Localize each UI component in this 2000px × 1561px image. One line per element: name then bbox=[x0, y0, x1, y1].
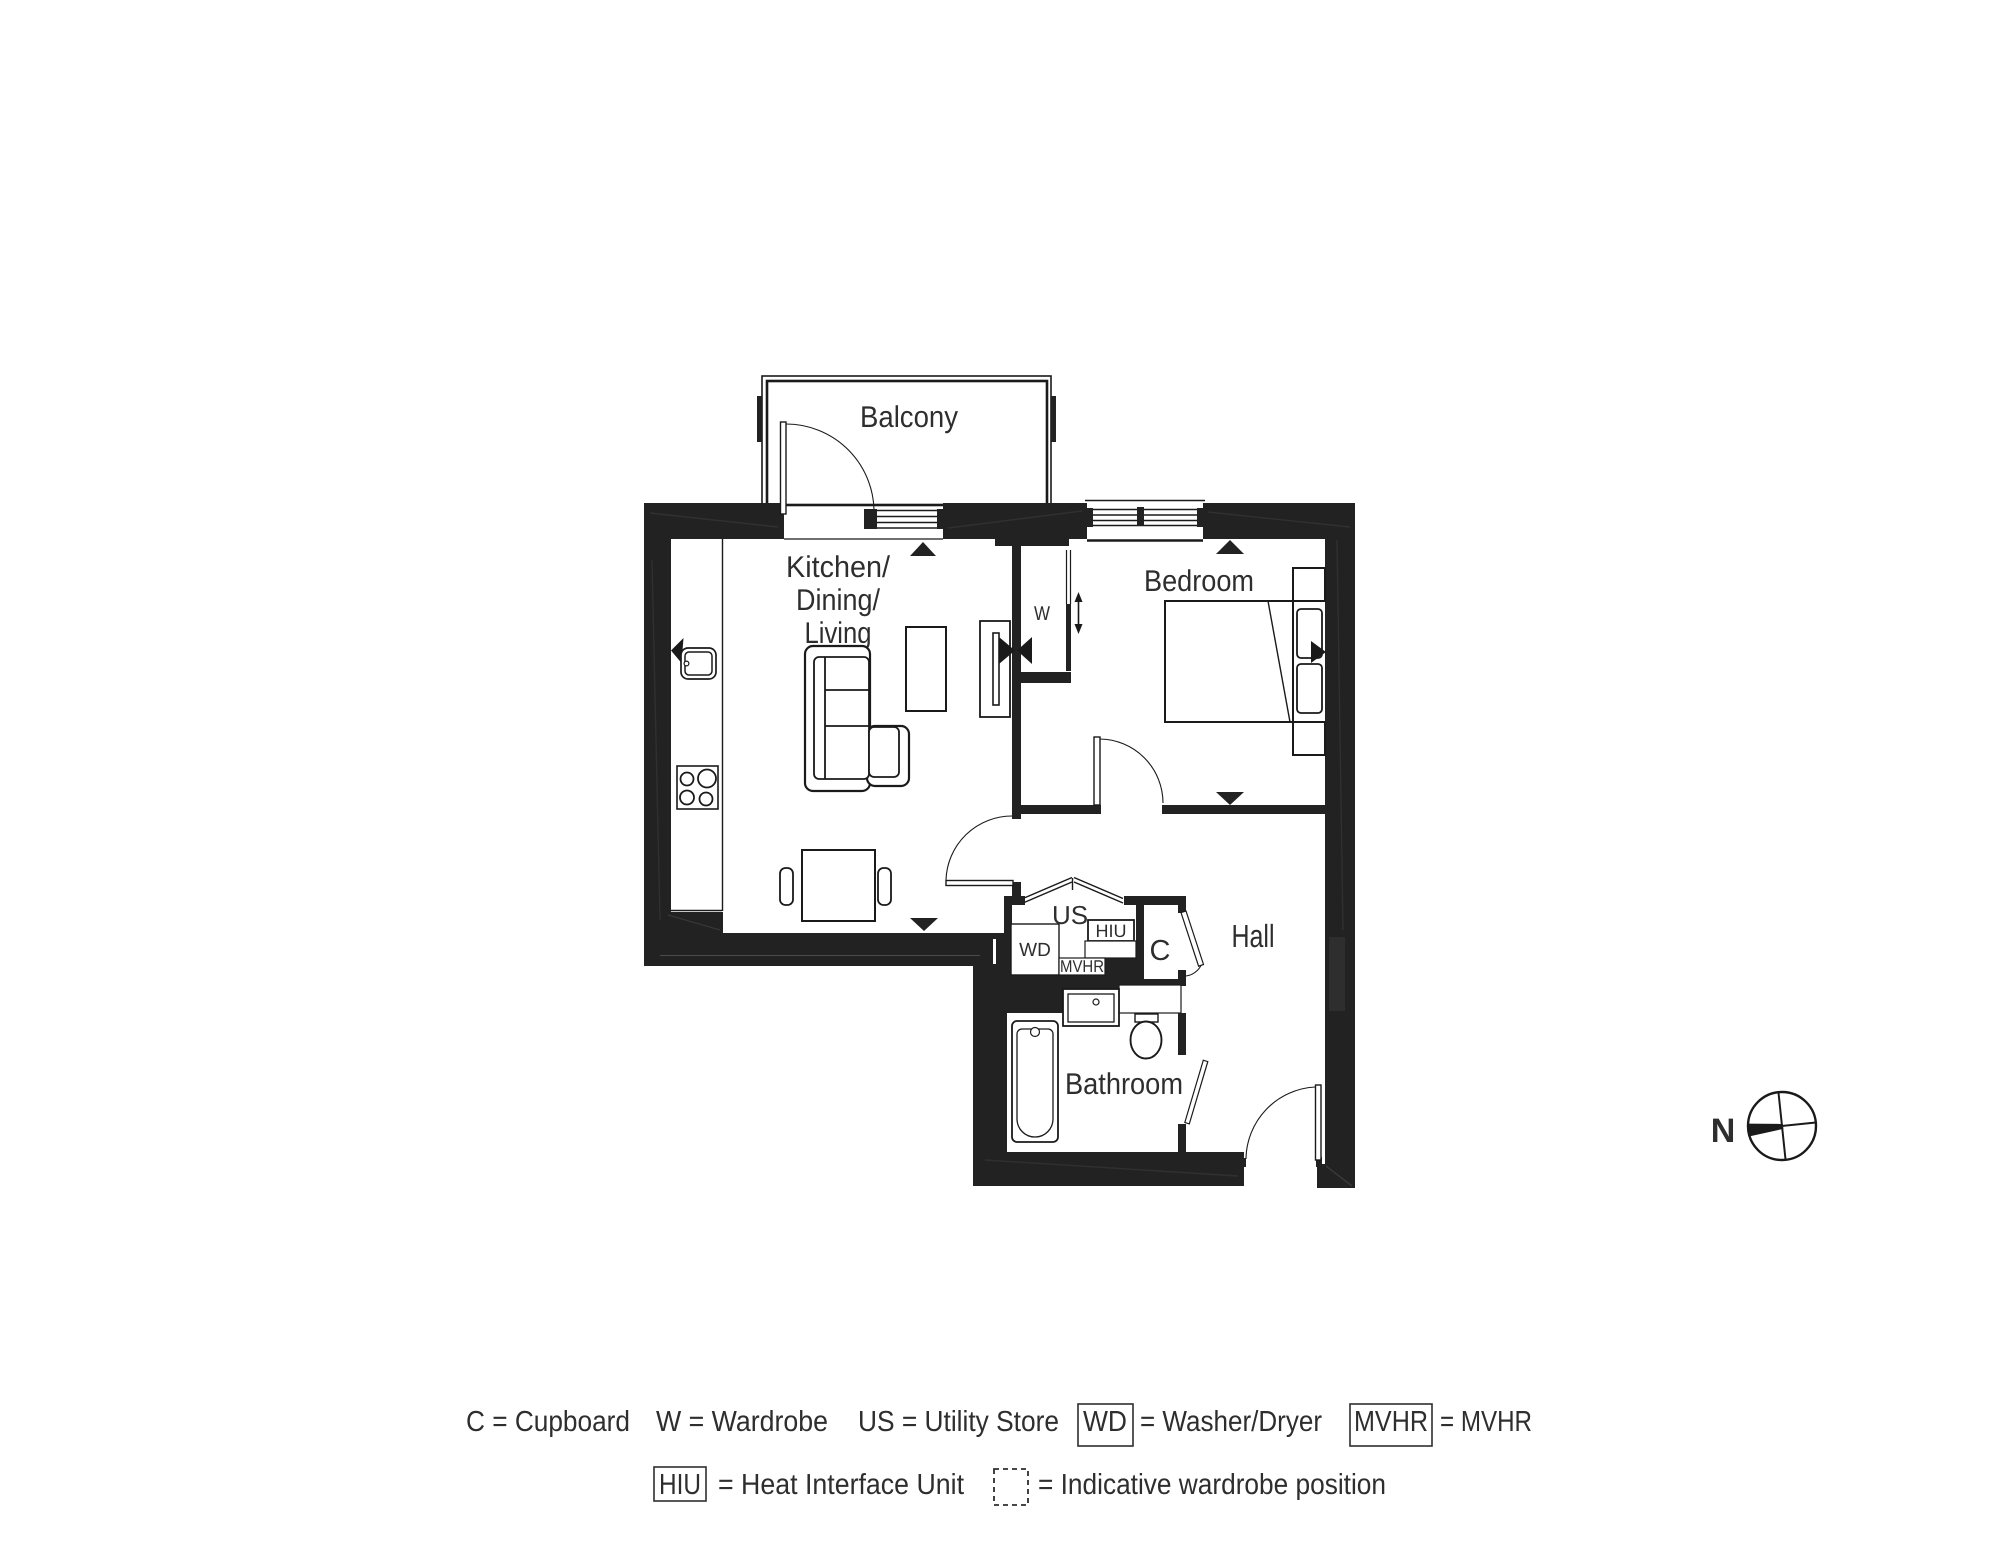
svg-text:HIU: HIU bbox=[659, 1469, 701, 1501]
svg-text:Balcony: Balcony bbox=[860, 401, 958, 434]
svg-text:= Heat Interface Unit: = Heat Interface Unit bbox=[718, 1469, 964, 1501]
svg-text:MVHR: MVHR bbox=[1060, 957, 1104, 976]
svg-text:Dining/: Dining/ bbox=[796, 584, 881, 617]
svg-text:Bedroom: Bedroom bbox=[1144, 565, 1254, 598]
svg-text:Kitchen/: Kitchen/ bbox=[786, 551, 891, 584]
svg-text:Hall: Hall bbox=[1232, 918, 1275, 954]
svg-text:US = Utility Store: US = Utility Store bbox=[858, 1406, 1059, 1438]
svg-text:Bathroom: Bathroom bbox=[1065, 1068, 1183, 1101]
svg-text:W = Wardrobe: W = Wardrobe bbox=[656, 1406, 828, 1438]
svg-text:US: US bbox=[1052, 900, 1088, 930]
svg-text:= Indicative wardrobe position: = Indicative wardrobe position bbox=[1038, 1469, 1386, 1501]
svg-text:= MVHR: = MVHR bbox=[1440, 1406, 1532, 1438]
svg-text:W: W bbox=[1034, 603, 1050, 625]
svg-text:HIU: HIU bbox=[1096, 921, 1127, 941]
svg-text:WD: WD bbox=[1019, 940, 1051, 961]
svg-text:C: C bbox=[1150, 935, 1171, 967]
svg-text:WD: WD bbox=[1083, 1406, 1127, 1438]
svg-text:= Washer/Dryer: = Washer/Dryer bbox=[1140, 1406, 1322, 1438]
svg-text:C = Cupboard: C = Cupboard bbox=[466, 1406, 630, 1438]
svg-text:MVHR: MVHR bbox=[1354, 1406, 1428, 1438]
svg-text:N: N bbox=[1711, 1112, 1736, 1150]
